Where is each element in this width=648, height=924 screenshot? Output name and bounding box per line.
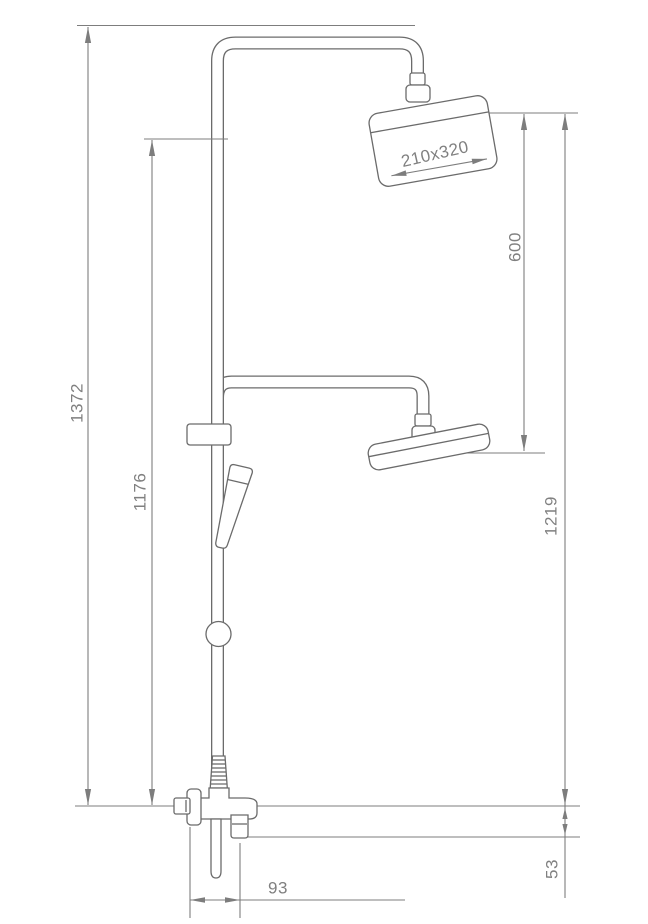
mixer-valve (174, 788, 257, 878)
slider-bracket (187, 424, 231, 445)
riser-height-dimension-label: 1176 (132, 473, 149, 512)
arrow-overall-bottom (85, 789, 91, 805)
upper-head-ball-joint (406, 73, 430, 102)
upper-joint-nut (406, 85, 430, 102)
shower-system-line-art (0, 0, 648, 924)
lower-arm-fill (218, 382, 424, 414)
arrow-lowerhead-bottom (562, 789, 568, 805)
lower-head-height-dimension-label: 1219 (543, 496, 560, 536)
arrow-spoutreach-left (190, 897, 205, 903)
upper-joint-taper (410, 73, 425, 85)
diverter-drop-tube (211, 819, 221, 878)
mixer-handle (174, 798, 190, 814)
arrow-riser-bottom (149, 789, 155, 805)
shower-fixture (174, 43, 499, 878)
arrow-lowerhead-top (562, 114, 568, 130)
arrow-overall-top (85, 27, 91, 43)
arrow-headspacing-top (521, 114, 527, 130)
arrow-riser-top (149, 140, 155, 156)
hose-corrugation (210, 756, 228, 791)
spout-reach-dimension-label: 93 (268, 880, 288, 897)
lower-joint-taper (415, 414, 431, 426)
head-spacing-dimension-label: 600 (507, 232, 524, 262)
hose-ball (206, 622, 231, 647)
spout-outlet (231, 815, 248, 838)
upper-shower-head (367, 94, 498, 188)
arrow-spoutreach-right (225, 897, 240, 903)
arrow-spoutdrop-bottom (562, 824, 567, 835)
technical-drawing-canvas: 1372 1176 600 1219 53 93 210x320 (0, 0, 648, 924)
overall-height-dimension-label: 1372 (69, 383, 86, 423)
dimension-lines (75, 26, 580, 919)
arrow-spoutdrop-top (562, 808, 567, 819)
lower-shower-arm (218, 382, 424, 414)
arrow-headspacing-bottom (521, 435, 527, 451)
corrugation-cone (210, 756, 228, 791)
upper-head-outline (367, 94, 498, 188)
spout-drop-dimension-label: 53 (544, 859, 561, 879)
